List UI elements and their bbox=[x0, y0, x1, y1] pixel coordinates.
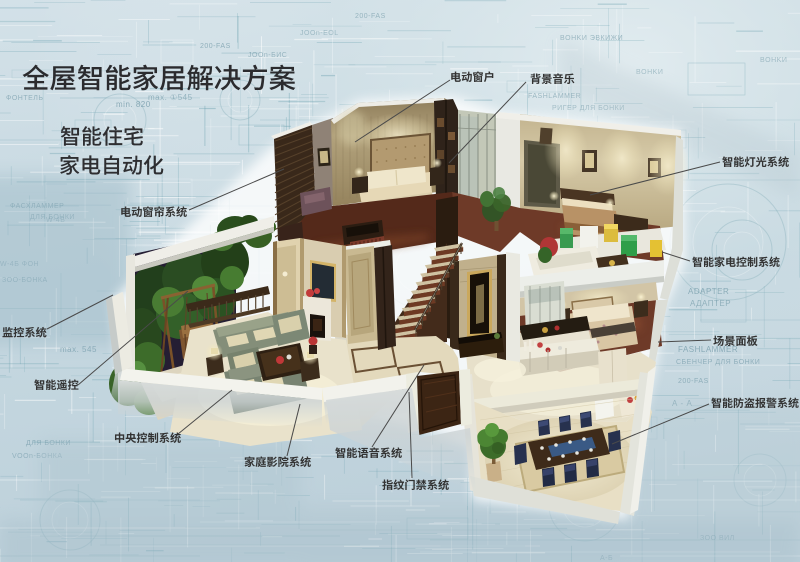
svg-text:200-FAS: 200-FAS bbox=[200, 43, 231, 50]
svg-text:АДАПТЕР: АДАПТЕР bbox=[690, 299, 731, 308]
svg-text:max. 545: max. 545 bbox=[60, 345, 97, 354]
svg-text:200-FAS: 200-FAS bbox=[678, 378, 709, 385]
svg-text:JOOn-EOL: JOOn-EOL bbox=[300, 30, 339, 37]
svg-text:min. 820: min. 820 bbox=[116, 100, 151, 109]
svg-text:FASHLAMMER: FASHLAMMER bbox=[678, 345, 738, 354]
svg-text:BOHKИ ЭВКИЖИ: BOHKИ ЭВКИЖИ bbox=[560, 35, 623, 42]
svg-text:BOHKИ: BOHKИ bbox=[760, 57, 787, 64]
svg-text:BOHKИ: BOHKИ bbox=[636, 69, 663, 76]
svg-text:JOOn-БИС: JOOn-БИС bbox=[248, 52, 287, 59]
svg-text:СБЕНЧЕР ДЛЯ БОНКИ: СБЕНЧЕР ДЛЯ БОНКИ bbox=[676, 359, 760, 366]
svg-text:ФОНТЕЛЬ: ФОНТЕЛЬ bbox=[6, 95, 43, 102]
svg-text:ADAPTER: ADAPTER bbox=[688, 287, 729, 296]
svg-text:200-FAS: 200-FAS bbox=[355, 13, 386, 20]
svg-text:max. ①545: max. ①545 bbox=[148, 93, 193, 102]
